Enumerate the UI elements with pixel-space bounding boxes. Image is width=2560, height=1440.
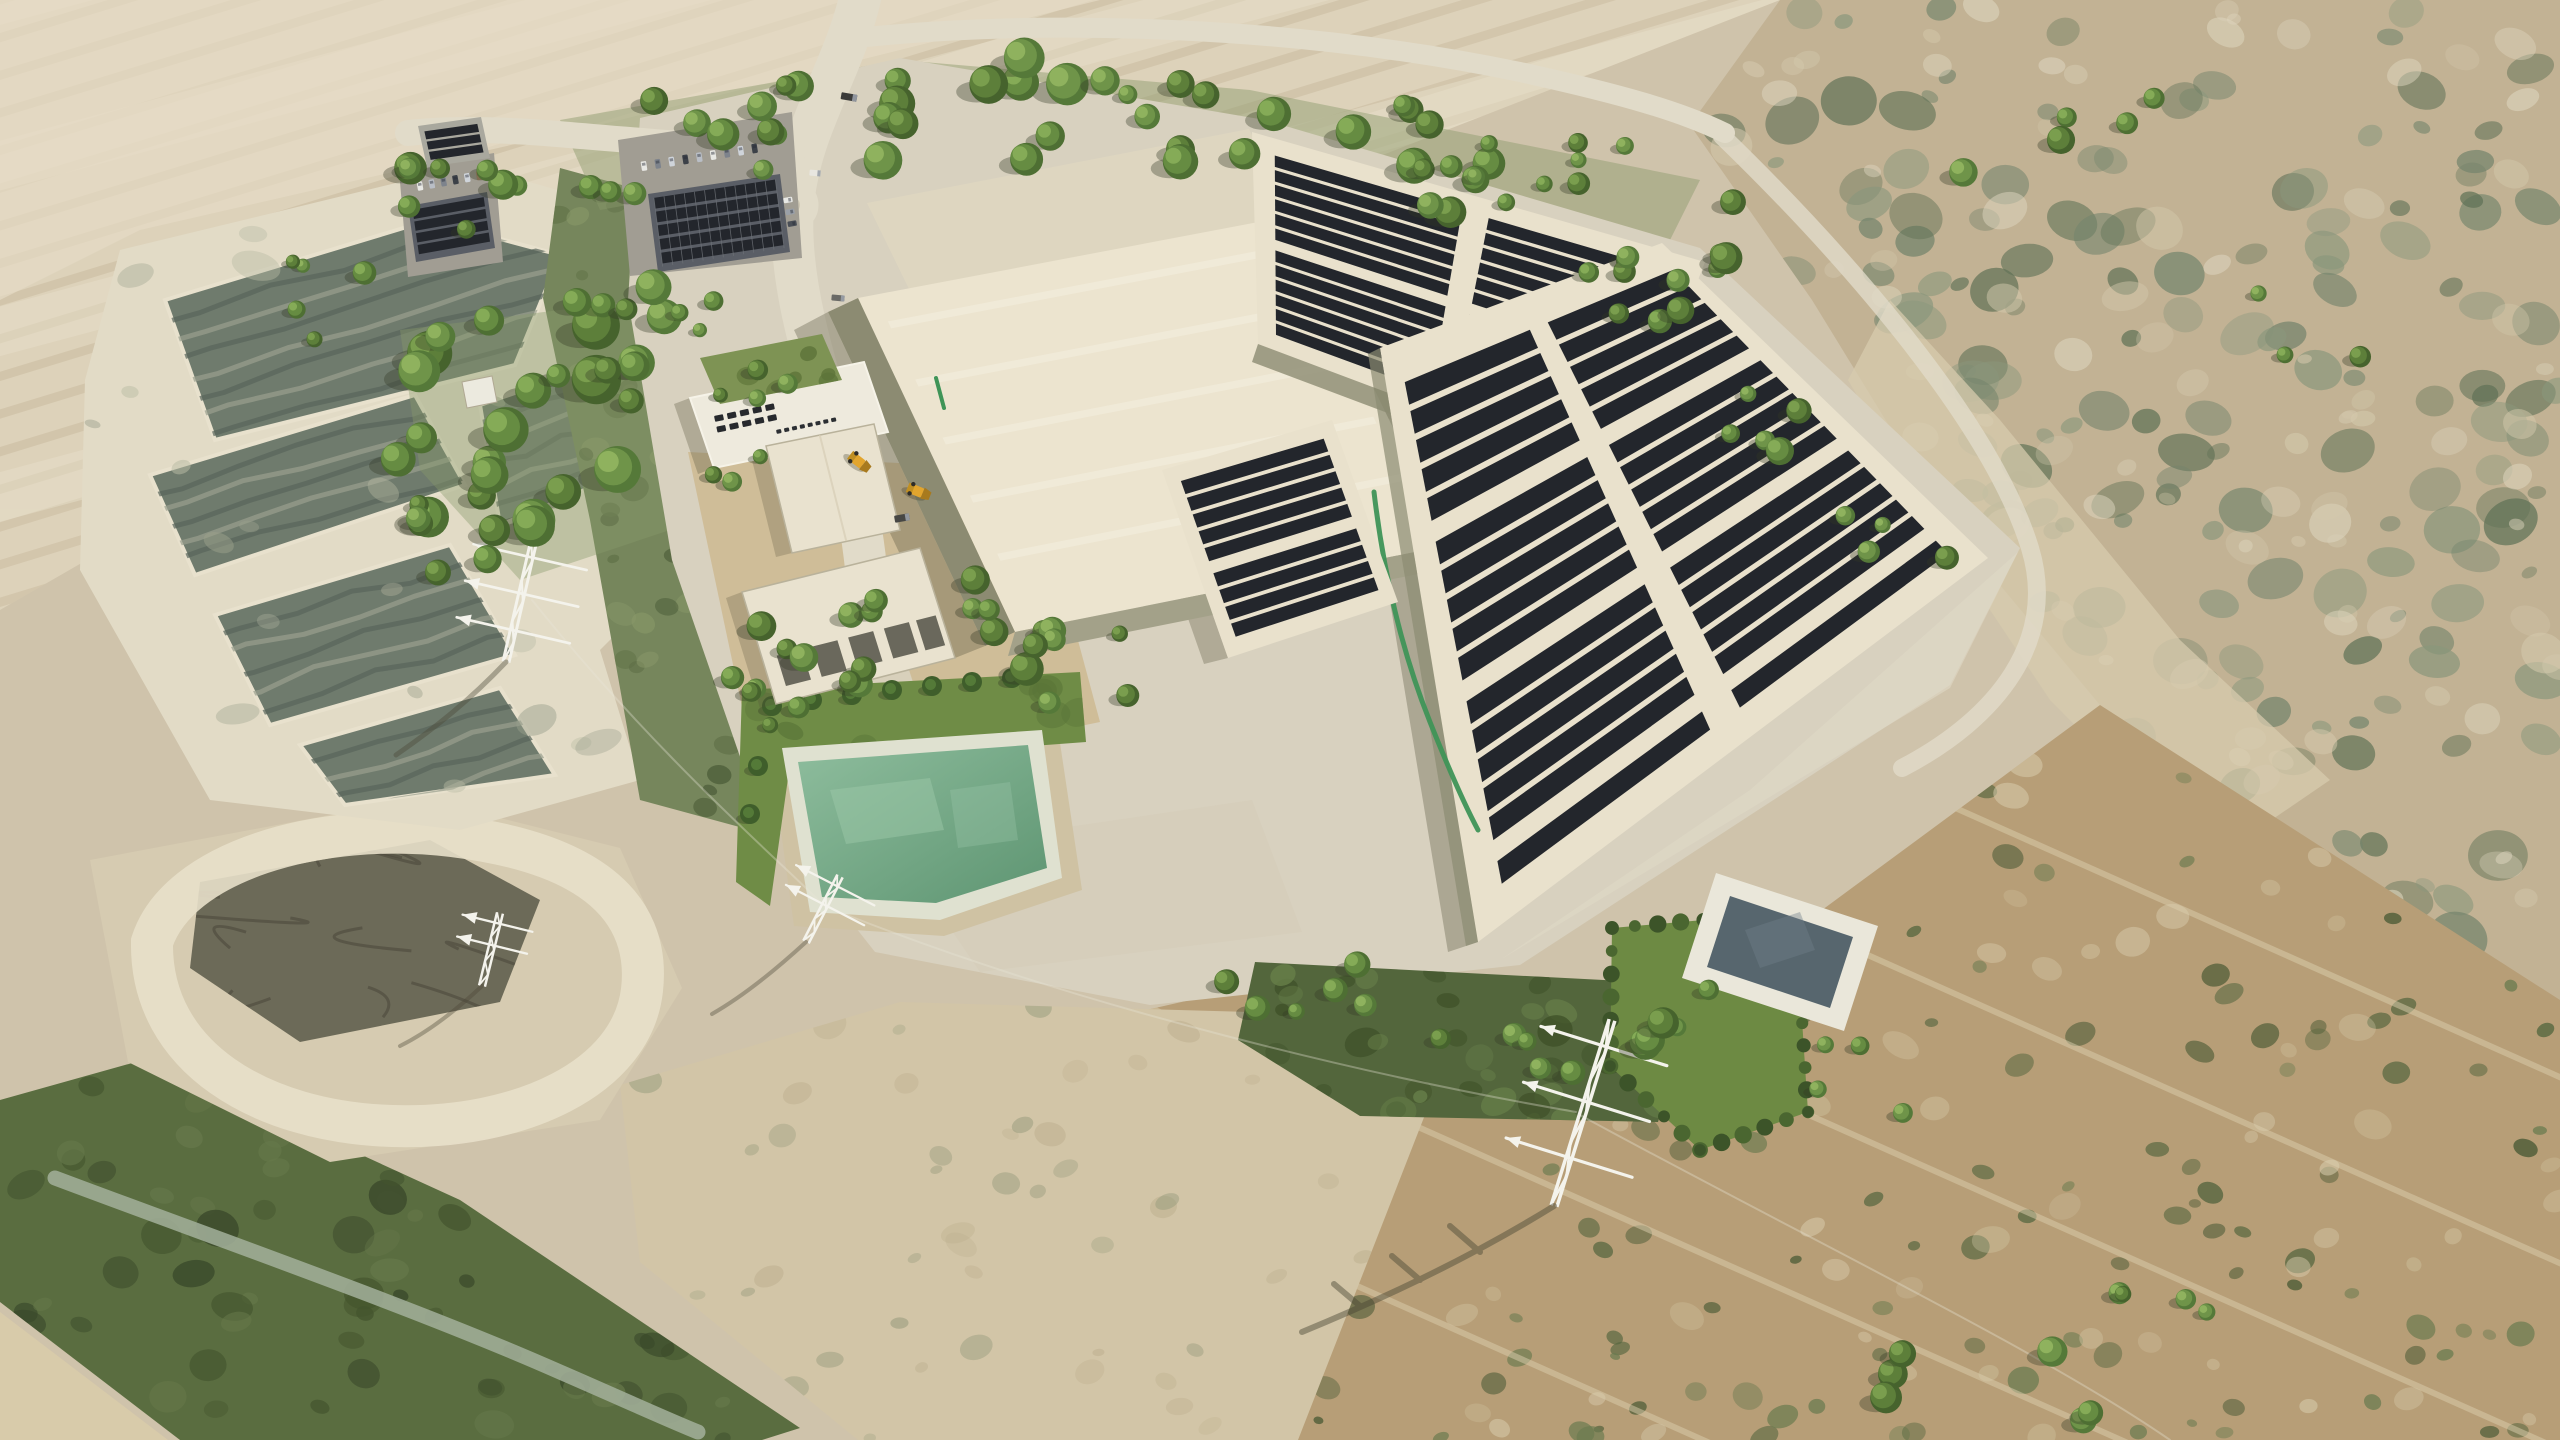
- screenshot-root: [0, 0, 2560, 1440]
- aerial-site-render: [0, 0, 2560, 1440]
- truck-mid: [831, 294, 844, 301]
- grove-shed: [462, 376, 497, 408]
- van-white: [809, 170, 820, 177]
- green-pond-sheen-2: [950, 782, 1018, 848]
- scene-layer: [0, 0, 2560, 1440]
